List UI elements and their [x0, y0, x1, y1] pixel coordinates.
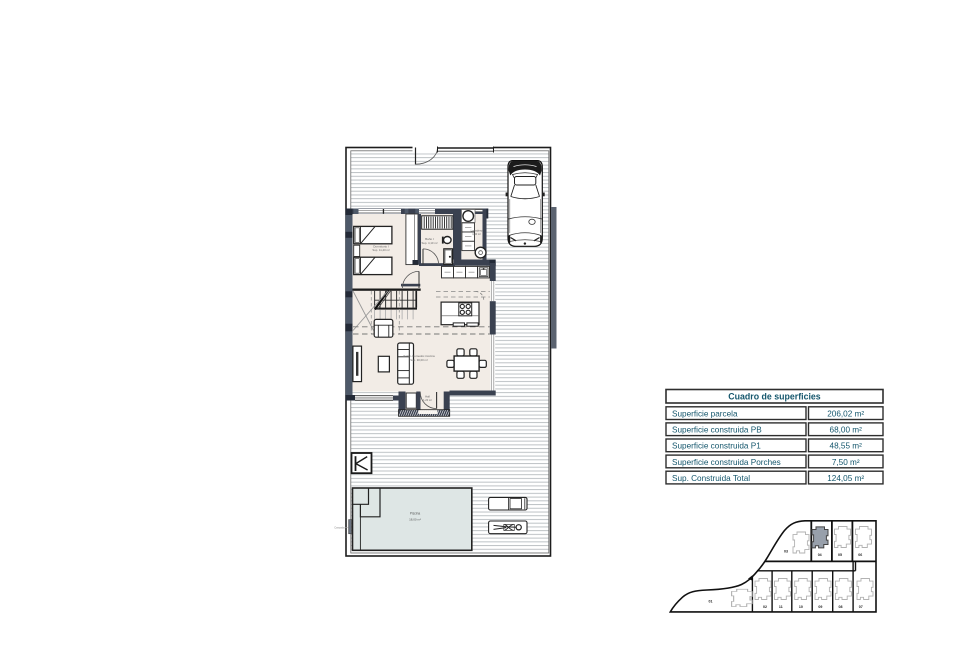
svg-text:Superficie construida PB: Superficie construida PB — [672, 426, 762, 435]
svg-text:Superficie parcela: Superficie parcela — [672, 410, 738, 419]
svg-text:04: 04 — [818, 553, 822, 557]
svg-text:Sup. 11,40 m²: Sup. 11,40 m² — [372, 248, 389, 252]
svg-text:68,00 m²: 68,00 m² — [830, 426, 863, 435]
svg-text:03: 03 — [784, 549, 788, 553]
svg-text:Superficie construida Porches: Superficie construida Porches — [672, 458, 781, 467]
svg-text:05: 05 — [838, 553, 842, 557]
svg-text:Cascada: Cascada — [334, 525, 345, 529]
svg-text:Sup. 30,00 m²: Sup. 30,00 m² — [410, 358, 428, 362]
svg-text:Piscina: Piscina — [410, 512, 421, 516]
svg-text:7,50 m²: 7,50 m² — [832, 458, 860, 467]
svg-text:Hall: Hall — [425, 395, 430, 399]
svg-text:10: 10 — [799, 605, 803, 609]
svg-text:09: 09 — [818, 605, 822, 609]
svg-text:01: 01 — [709, 600, 713, 604]
svg-text:Lavadero: Lavadero — [471, 229, 483, 233]
svg-text:08: 08 — [839, 605, 843, 609]
svg-text:18,00 m²: 18,00 m² — [409, 517, 421, 521]
svg-text:02: 02 — [763, 605, 767, 609]
svg-text:Cuadro de superficies: Cuadro de superficies — [728, 392, 821, 402]
svg-text:06: 06 — [858, 553, 862, 557]
svg-text:Superficie construida P1: Superficie construida P1 — [672, 442, 761, 451]
svg-text:124,05 m²: 124,05 m² — [827, 474, 864, 483]
svg-text:Sup. 4,10 m²: Sup. 4,10 m² — [421, 241, 437, 245]
svg-text:4,40 m²: 4,40 m² — [472, 232, 481, 236]
svg-text:11: 11 — [779, 605, 783, 609]
svg-text:206,02 m²: 206,02 m² — [827, 410, 864, 419]
svg-text:07: 07 — [859, 605, 863, 609]
svg-text:48,55 m²: 48,55 m² — [830, 442, 863, 451]
svg-text:1,20 m²: 1,20 m² — [423, 398, 432, 402]
svg-text:Sup. Construida Total: Sup. Construida Total — [672, 474, 750, 483]
